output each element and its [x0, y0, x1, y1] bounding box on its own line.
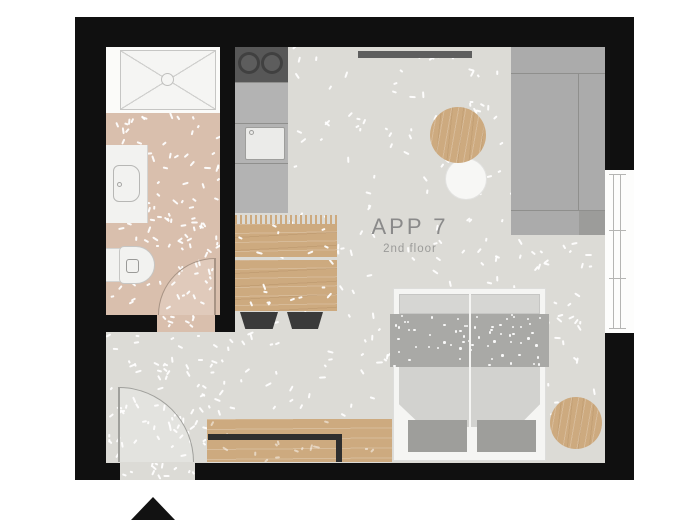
- bed-center-split: [469, 292, 471, 427]
- bed-foot-mat-left: [408, 420, 467, 452]
- dining-stool-right: [287, 312, 323, 329]
- wall-right-upper: [605, 17, 634, 170]
- wall-mounted-bar: [358, 51, 472, 58]
- bathroom-door-leaf: [214, 258, 216, 315]
- sink-faucet: [249, 130, 254, 135]
- window-frame-tick: [609, 230, 626, 231]
- counter-divider: [235, 82, 288, 83]
- window-glass-line: [613, 174, 614, 329]
- sofa: [511, 47, 605, 235]
- wall-left: [75, 17, 106, 480]
- window-frame-tick: [609, 328, 626, 329]
- dining-table-bottom: [235, 260, 337, 311]
- wall-top: [75, 17, 634, 47]
- wall-bathroom-band-left: [106, 315, 157, 332]
- window-bench: [207, 419, 392, 462]
- bench-dark-edge-top: [208, 434, 342, 440]
- entrance-triangle-marker: [131, 497, 175, 520]
- sofa-seam: [578, 73, 579, 210]
- bench-dark-edge-right: [336, 434, 342, 462]
- toilet-flush-button: [126, 259, 139, 273]
- stove-burner-right: [261, 52, 283, 74]
- window-glass-line: [620, 174, 621, 329]
- counter-divider: [235, 163, 288, 164]
- bathroom-door-passage: [157, 315, 215, 332]
- stove-burner-left: [238, 52, 260, 74]
- apartment-title: APP 7: [330, 214, 490, 240]
- sofa-corner-cushion: [579, 211, 605, 235]
- entrance-passage-floor: [120, 463, 195, 480]
- dining-stool-left: [240, 312, 278, 329]
- dining-table-top: [235, 224, 337, 257]
- window-frame-tick: [609, 174, 626, 175]
- side-table-white: [445, 158, 487, 200]
- sofa-seam: [511, 73, 605, 74]
- counter-divider: [235, 123, 288, 124]
- bedside-stool-round: [550, 397, 602, 449]
- apartment-subtitle: 2nd floor: [330, 243, 490, 255]
- shower-drain: [161, 73, 174, 86]
- wall-bathroom-band-stub: [215, 315, 223, 332]
- wall-bottom-left: [75, 463, 120, 480]
- basin-faucet: [117, 182, 122, 187]
- wall-interior-vertical: [220, 47, 235, 332]
- wall-right-lower: [605, 333, 634, 480]
- coffee-table-round: [430, 107, 486, 163]
- floor-plan: APP 7 2nd floor: [0, 0, 700, 525]
- wall-bottom-right: [195, 463, 634, 480]
- entrance-door-leaf: [118, 387, 120, 462]
- table-fringe-edge: [235, 215, 337, 224]
- bed-foot-mat-right: [477, 420, 536, 452]
- window-frame-tick: [609, 278, 626, 279]
